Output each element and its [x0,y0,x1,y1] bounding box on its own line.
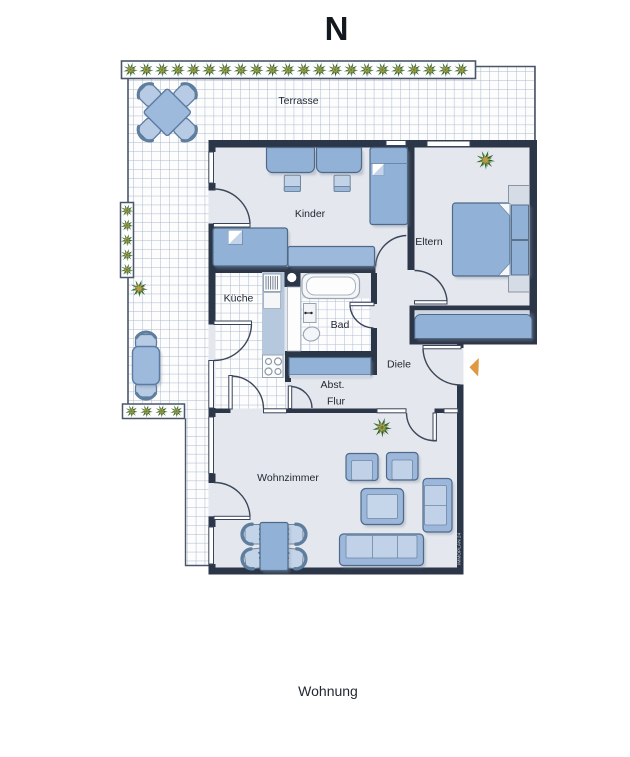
svg-text:Kinder: Kinder [295,208,326,220]
svg-text:Terrasse: Terrasse [278,95,318,107]
svg-text:Eltern: Eltern [415,236,443,248]
svg-text:Wohnung: Wohnung [298,683,358,699]
svg-text:IMMOPLAN 24: IMMOPLAN 24 [457,532,463,565]
svg-text:Wohnzimmer: Wohnzimmer [257,472,319,484]
svg-text:Küche: Küche [224,293,254,305]
svg-text:N: N [325,10,349,47]
svg-text:Flur: Flur [327,396,346,408]
svg-text:Diele: Diele [387,359,411,371]
svg-text:Bad: Bad [331,319,350,331]
svg-text:Abst.: Abst. [321,379,345,391]
